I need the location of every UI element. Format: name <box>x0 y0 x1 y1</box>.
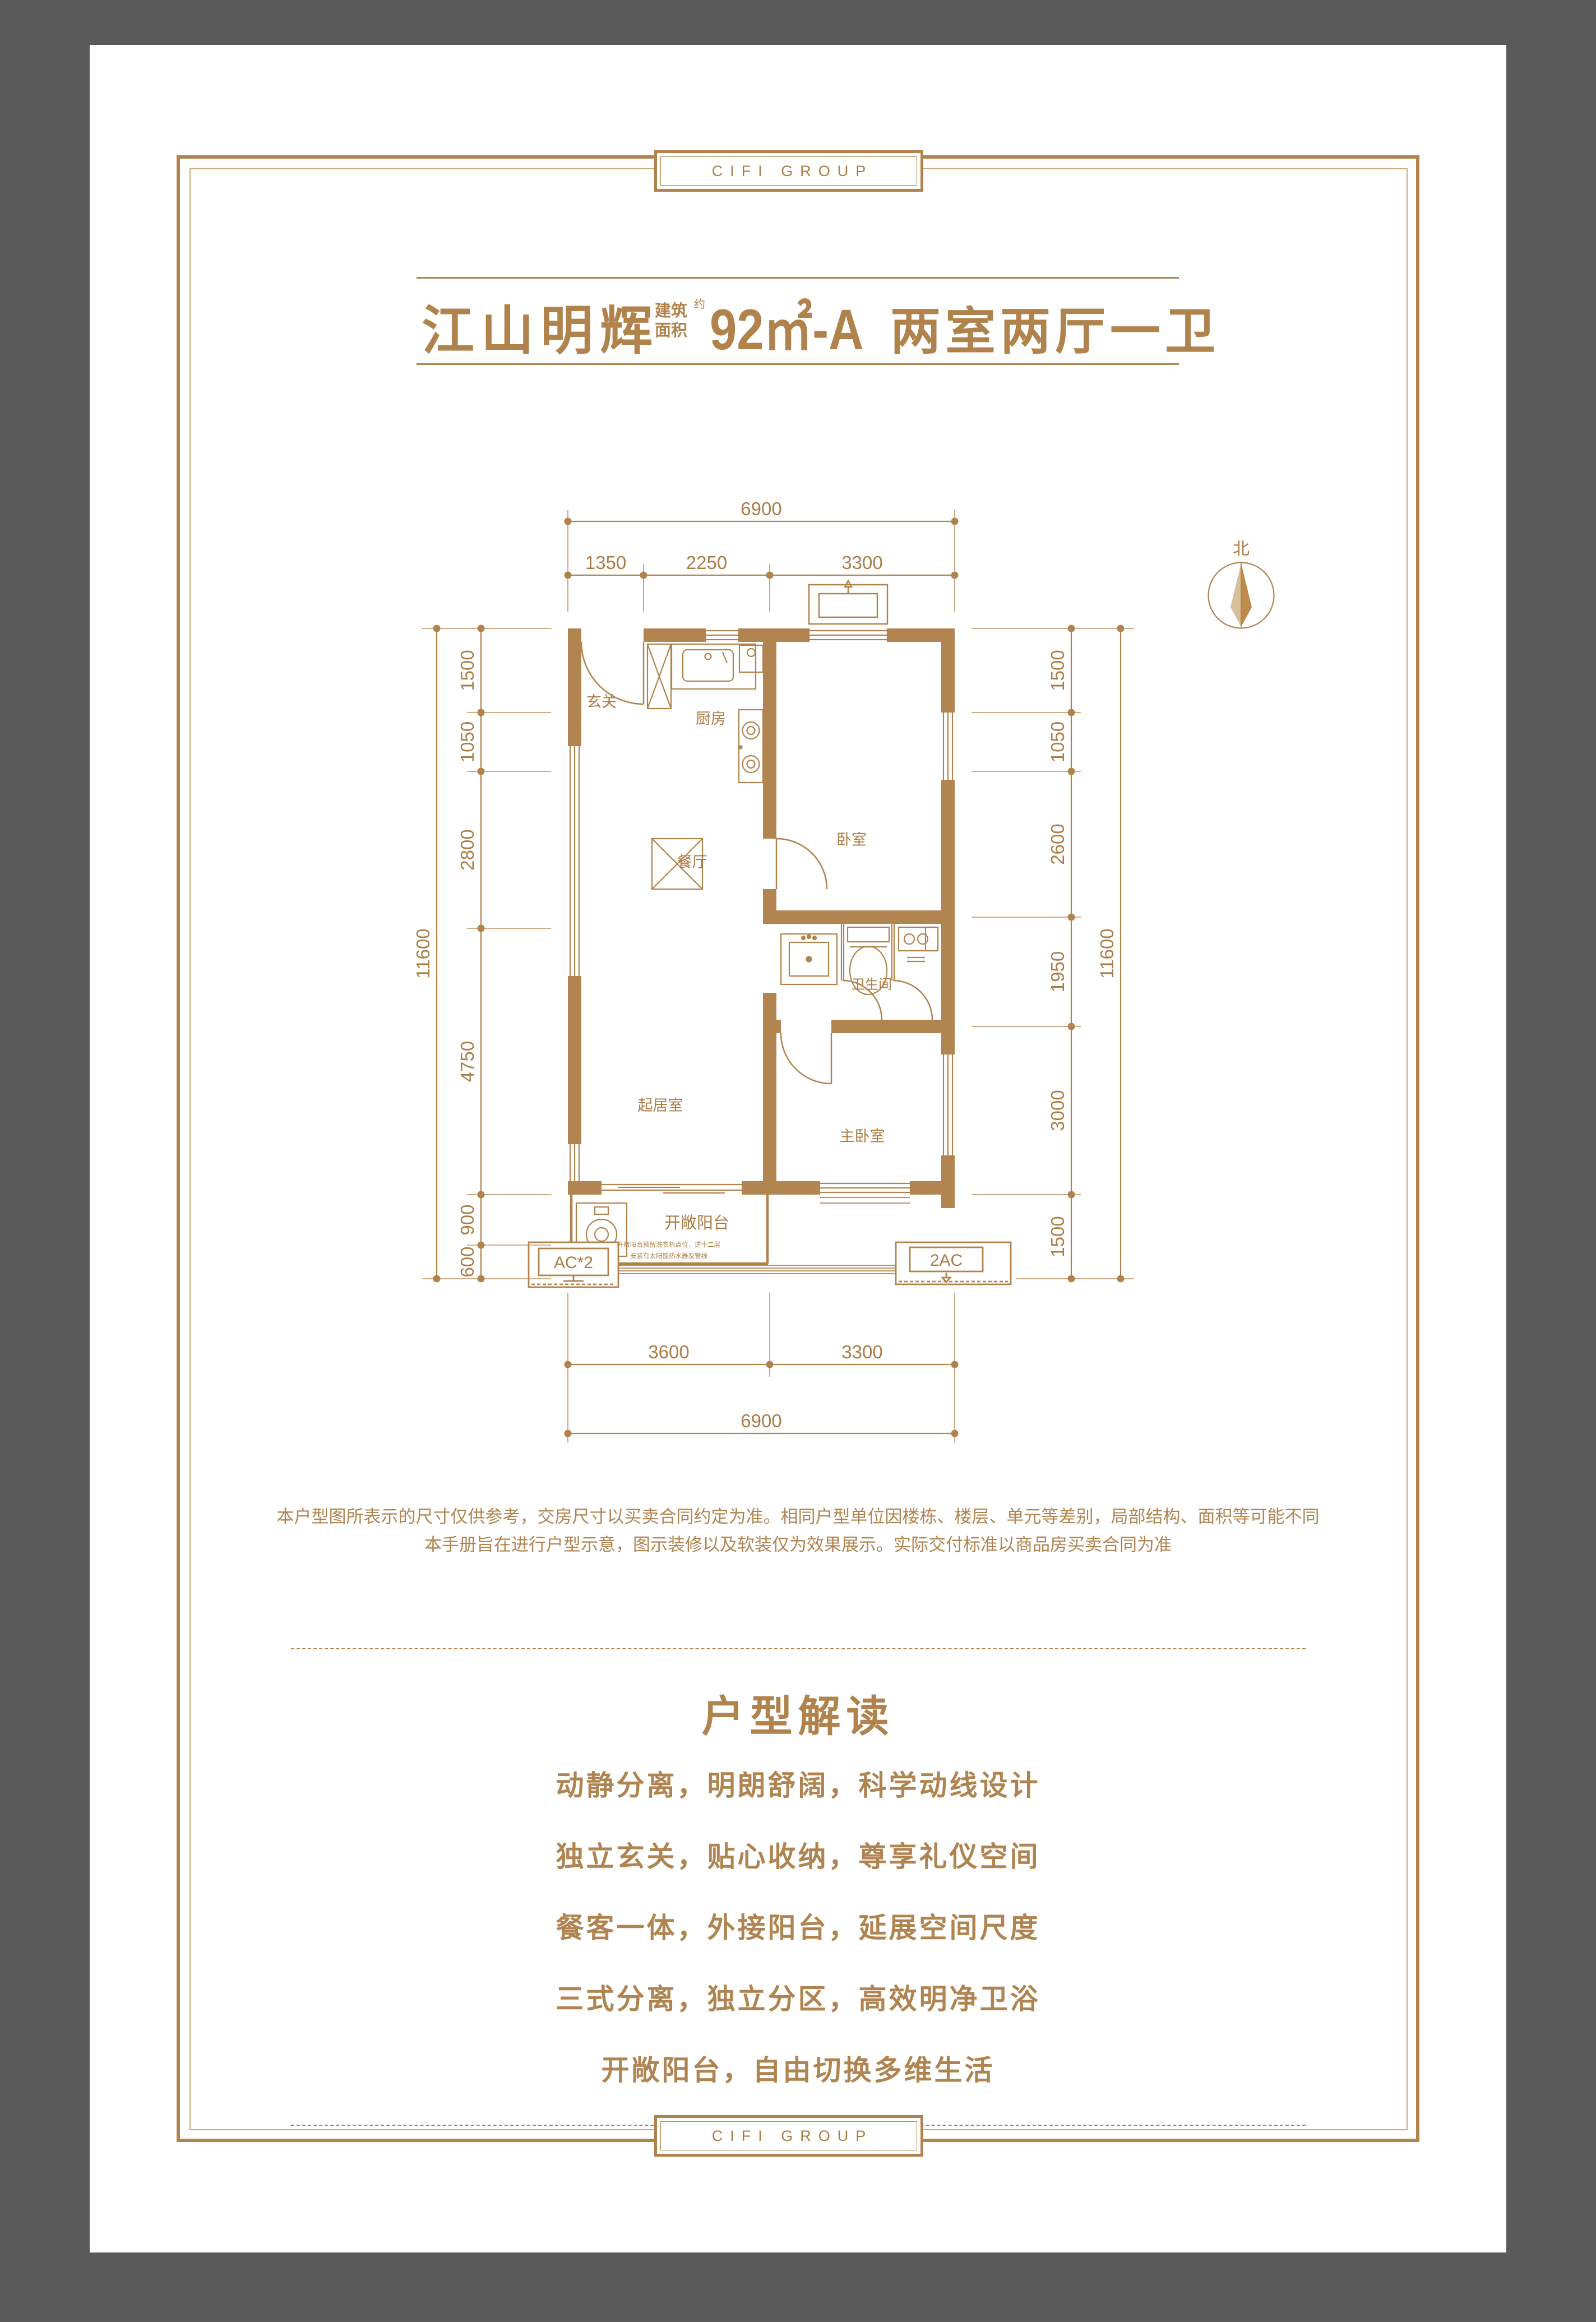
bullet-3: 餐客一体，外接阳台，延展空间尺度 <box>0 1905 1596 1946</box>
section-title: 户型解读 <box>0 1682 1596 1743</box>
dim-bottom-0: 3600 <box>648 1342 689 1362</box>
area-label-line2: 面积 <box>655 321 687 341</box>
room-master: 主卧室 <box>840 1128 885 1145</box>
dim-left-1: 1050 <box>457 721 478 762</box>
ac-right-label: 2AC <box>930 1251 963 1270</box>
north-label: 北 <box>1233 540 1250 558</box>
dim-top-2: 3300 <box>841 552 882 573</box>
disclaimer-line1: 本户型图所表示的尺寸仅供参考，交房尺寸以买卖合同约定为准。相同户型单位因楼栋、楼… <box>0 1502 1596 1528</box>
dim-right-5: 1500 <box>1047 1216 1068 1257</box>
dim-left-5: 600 <box>457 1246 478 1277</box>
ac-left-label: AC*2 <box>554 1253 593 1272</box>
solar-heater-platform <box>809 581 887 624</box>
bullet-1: 动静分离，明朗舒阔，科学动线设计 <box>0 1763 1596 1803</box>
dim-extension-lines <box>422 510 1134 1442</box>
balcony-note-line1: 开敞阳台预留洗衣机点位，逆十二层 <box>617 1241 720 1248</box>
dim-nodes <box>433 518 1125 1437</box>
room-kitchen: 厨房 <box>696 710 726 727</box>
kitchen-cabinet <box>647 644 671 709</box>
room-dining: 餐厅 <box>677 854 707 871</box>
dim-left-0: 1500 <box>457 650 478 691</box>
brand-box-top: CIFI GROUP <box>654 150 923 192</box>
dim-left-2: 2800 <box>457 829 478 870</box>
room-bedroom: 卧室 <box>836 831 867 848</box>
kitchen-stove <box>739 710 763 783</box>
title-rule-bottom <box>417 363 1179 365</box>
shower-sink <box>899 927 938 961</box>
divider-dashed-top <box>291 1648 1306 1649</box>
dim-right-1: 1050 <box>1047 721 1068 762</box>
dim-left-3: 4750 <box>457 1041 478 1082</box>
ac-unit-right: 2AC <box>896 1242 1011 1284</box>
bullet-5: 开敞阳台，自由切换多维生活 <box>0 2048 1596 2088</box>
plan-walls <box>568 628 955 1208</box>
railing-band <box>599 1197 910 1274</box>
layout-type: 两室两厅一卫 <box>890 290 1220 363</box>
area-label-stack: 建筑 面积 <box>655 302 687 341</box>
dim-top-0: 1350 <box>585 552 626 573</box>
dim-right-3: 1950 <box>1047 951 1068 992</box>
dim-top-1: 2250 <box>686 552 727 573</box>
dim-left-total: 11600 <box>413 928 433 978</box>
project-name: 江山明辉 <box>422 288 659 364</box>
kitchen-sink <box>672 644 756 689</box>
area-value: 92㎡-A <box>710 284 864 366</box>
dim-right-total: 11600 <box>1097 928 1117 978</box>
brand-name-top: CIFI GROUP <box>705 163 873 180</box>
dim-left-4: 900 <box>457 1204 478 1235</box>
bath-basin <box>781 934 837 984</box>
dim-top-total: 6900 <box>741 498 781 519</box>
disclaimer-line2: 本手册旨在进行户型示意，图示装修以及软装仅为效果展示。实际交付标准以商品房买卖合… <box>0 1530 1596 1556</box>
dim-right-4: 3000 <box>1047 1090 1068 1131</box>
plan-doors <box>581 642 932 1084</box>
compass-needle-right <box>1241 563 1252 627</box>
dim-bottom-1: 3300 <box>841 1342 882 1362</box>
bullet-2: 独立玄关，贴心收纳，尊享礼仪空间 <box>0 1834 1596 1875</box>
room-living: 起居室 <box>638 1097 683 1114</box>
brand-box-top-inner: CIFI GROUP <box>660 156 917 186</box>
balcony-note-line2: 安装有太阳能热水器及管线 <box>630 1252 707 1260</box>
brand-box-bottom-inner: CIFI GROUP <box>660 2121 917 2150</box>
area-label-line1: 建筑 <box>655 302 687 321</box>
room-bath: 卫生间 <box>852 977 892 992</box>
area-approx-mark: 约 <box>694 295 705 311</box>
kitchen-flue <box>739 645 763 672</box>
dim-bottom-total: 6900 <box>741 1410 781 1431</box>
bullet-4: 三式分离，独立分区，高效明净卫浴 <box>0 1977 1596 2017</box>
brand-box-bottom: CIFI GROUP <box>654 2115 923 2157</box>
dim-chain-lines <box>437 521 1121 1433</box>
title-rule-top <box>417 277 1179 279</box>
room-entry: 玄关 <box>586 693 617 710</box>
compass-needle-left <box>1230 563 1241 627</box>
brochure-canvas: CIFI GROUP 江山明辉 建筑 面积 约 92㎡-A 两室两厅一卫 <box>0 0 1596 2322</box>
ac-unit-left: AC*2 <box>529 1242 618 1287</box>
floor-plan: AC*2 2AC 玄关 厨房 餐厅 卧室 卫生间 起居室 主卧室 开敞阳台 开敞… <box>405 483 1285 1453</box>
dim-right-2: 2600 <box>1047 824 1068 864</box>
dim-right-0: 1500 <box>1047 650 1068 691</box>
north-compass: 北 <box>1209 540 1274 628</box>
brand-name-bottom: CIFI GROUP <box>705 2127 873 2145</box>
room-balcony: 开敞阳台 <box>664 1214 729 1232</box>
